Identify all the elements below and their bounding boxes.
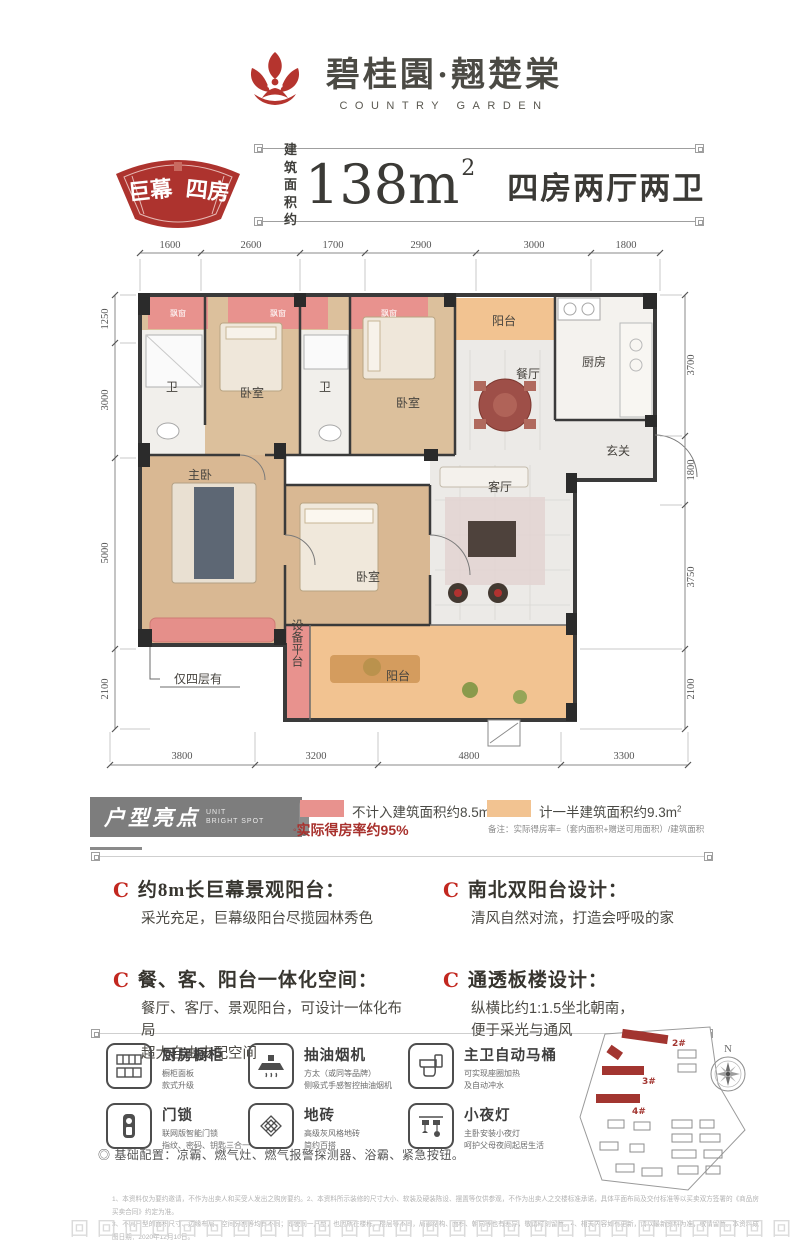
range-hood-icon [248,1043,294,1089]
dim-left-1: 1250 [100,309,111,330]
badge-word-2: 四房 [185,176,231,205]
area-value: 138m2 [305,158,475,212]
room-label-living: 客厅 [488,479,512,494]
dim-left-4: 2100 [100,679,111,700]
room-label-balcony-bottom: 阳台 [386,668,410,683]
dim-right-4: 2100 [686,679,697,700]
brand-header: 碧桂園·翹楚棠 COUNTRY GARDEN [0,42,800,116]
legend-pink-swatch [300,800,344,817]
bay-window-label-2: 飘窗 [270,308,286,318]
peony-logo-icon [238,42,312,116]
actual-rate-text: ◦实际得房率约95% [293,820,409,840]
room-label-bed3: 卧室 [356,569,380,584]
dim-right-2: 1800 [686,460,697,481]
building-label-4: 4# [632,1107,646,1117]
door-lock-icon [106,1103,152,1149]
highlight-bullet-icon: C [113,878,130,902]
dim-bottom-4: 3300 [614,751,635,762]
highlight-item-1: C约8m长巨幕景观阳台： 采光充足，巨幕级阳台尽揽园林秀色 [113,875,413,930]
legend-orange-swatch [487,800,531,817]
room-label-kitchen: 厨房 [582,354,606,369]
legend-note: 备注：实际得房率=（套内面积+赠送可用面积）/建筑面积 [488,823,704,835]
highlight-bullet-icon: C [443,968,460,992]
dim-top-2: 2600 [241,240,262,251]
legend-orange-label: 计一半建筑面积约9.3m2 [539,801,681,821]
highlight-bullet-icon: C [113,968,130,992]
night-light-icon [408,1103,454,1149]
dim-bottom-3: 4800 [459,751,480,762]
badge-word-1: 巨幕 [127,176,174,206]
dim-left-3: 5000 [100,543,111,564]
headline-box: 建 筑 面积约 138m2 四房两厅两卫 [258,148,700,222]
room-label-bath2: 卫 [319,380,331,394]
dim-right-1: 3700 [686,355,697,376]
dim-right-3: 3750 [686,567,697,588]
floor-tile-icon [248,1103,294,1149]
floorplan-flyer: 碧桂園·翹楚棠 COUNTRY GARDEN 巨幕 四房 建 筑 面积约 138… [0,0,800,1258]
room-label-equipment: 设备平台 [290,619,304,667]
highlights-section: C约8m长巨幕景观阳台： 采光充足，巨幕级阳台尽揽园林秀色 C餐、客、阳台一体化… [95,856,709,1034]
site-plan-map: 2# 3# 4# N [560,1022,760,1197]
feature-smart-toilet: 主卫自动马桶 可实现座圈加热 及自动冲水 [408,1043,566,1091]
brand-name-cn: 碧桂園·翹楚棠 [326,47,562,96]
compass-north-label: N [724,1043,732,1055]
banner-underline [90,847,142,850]
room-label-hall: 玄关 [606,443,630,458]
feature-door-lock: 门锁 联网版智能门锁 指纹、密码、钥匙三合一 [106,1103,264,1151]
room-label-bed2: 卧室 [396,395,420,410]
dim-left-2: 3000 [100,390,111,411]
base-config-note: ◎ 基础配置：凉霸、燃气灶、燃气报警探测器、浴霸、紧急按钮。 [98,1146,464,1163]
dim-top-3: 1700 [323,240,344,251]
floorplan-drawing: 卫 卧室 卫 卧室 餐厅 厨房 玄关 客厅 主卧 卧室 阳台 阳台 设备平台 飘… [0,235,800,795]
cabinet-icon [106,1043,152,1089]
feature-night-light: 小夜灯 主卧安装小夜灯 呵护父母夜间起居生活 [408,1103,566,1151]
dim-top-4: 2900 [411,240,432,251]
room-label-balcony-top: 阳台 [492,313,516,328]
room-label-bath1: 卫 [166,380,178,394]
highlight-bullet-icon: C [443,878,460,902]
fan-badge: 巨幕 四房 [108,142,248,234]
room-label-bed1: 卧室 [240,385,264,400]
area-prefix-line1: 建 筑 [284,141,299,176]
building-label-3: 3# [642,1077,656,1087]
bay-window-label-3: 飘窗 [381,308,397,318]
dim-bottom-1: 3800 [172,751,193,762]
room-label-dining: 餐厅 [516,366,540,381]
highlight-item-3: C南北双阳台设计： 清风自然对流，打造会呼吸的家 [443,875,743,930]
dim-top-6: 1800 [616,240,637,251]
toilet-icon [408,1043,454,1089]
brand-name-en: COUNTRY GARDEN [326,100,562,112]
dim-top-5: 3000 [524,240,545,251]
banner-title-cn: 户型亮点 [104,802,200,832]
feature-floor-tile: 地砖 高级灰风格地砖 简约百搭 [248,1103,406,1151]
banner-title-en: UNIT BRIGHT SPOT [206,808,264,826]
floor-note: 仅四层有 [174,672,222,686]
building-label-2: 2# [672,1039,686,1049]
dim-bottom-2: 3200 [306,751,327,762]
dim-top-1: 1600 [160,240,181,251]
unit-bright-spot-banner: 户型亮点 UNIT BRIGHT SPOT [90,797,302,837]
area-prefix-line2: 面积约 [284,176,299,229]
feature-kitchen-cabinet: 厨房橱柜 橱柜面板 款式升级 [106,1043,264,1091]
bay-window-label-1: 飘窗 [170,308,186,318]
feature-range-hood: 抽油烟机 方太（或同等品牌） 侧吸式手感智控抽油烟机 [248,1043,406,1091]
room-label-master: 主卧 [188,468,212,482]
greek-key-border: 回回回回回回回回回回回回回回回回回回回回回回回回回回回回 [70,1214,800,1241]
rooms-description: 四房两厅两卫 [507,163,705,208]
legend-pink-label: 不计入建筑面积约8.5m2 [352,801,494,821]
